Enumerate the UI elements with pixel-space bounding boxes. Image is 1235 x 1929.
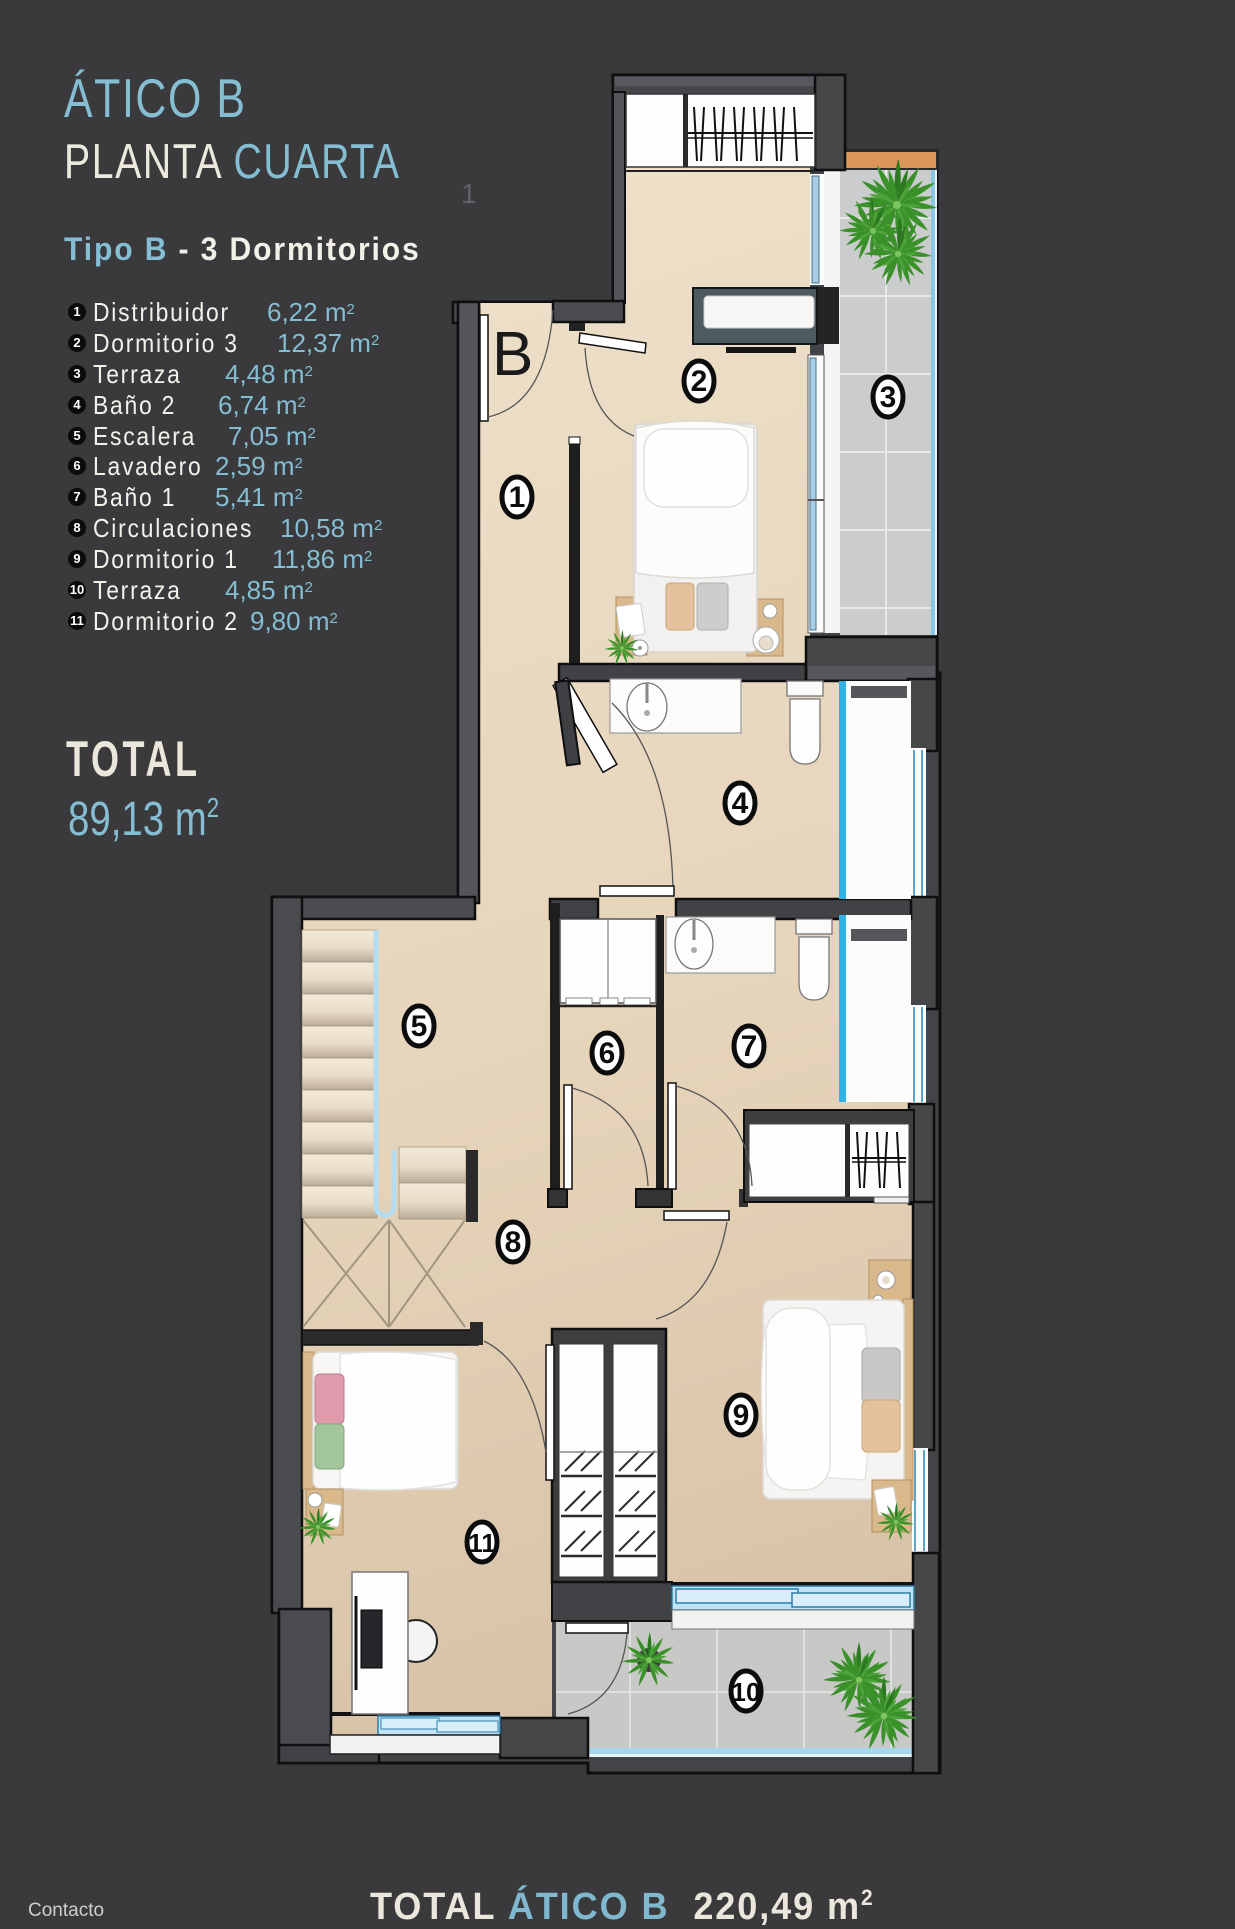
svg-text:5: 5 <box>411 1010 428 1043</box>
svg-text:11: 11 <box>468 1528 496 1558</box>
svg-text:7: 7 <box>741 1030 758 1063</box>
svg-text:10: 10 <box>732 1677 761 1707</box>
svg-text:1: 1 <box>461 178 477 209</box>
svg-text:6: 6 <box>599 1037 616 1070</box>
svg-text:8: 8 <box>505 1226 522 1259</box>
svg-text:4: 4 <box>732 787 749 820</box>
svg-text:3: 3 <box>880 381 897 414</box>
svg-text:1: 1 <box>509 481 526 514</box>
svg-text:B: B <box>492 320 533 389</box>
svg-text:9: 9 <box>733 1399 750 1432</box>
svg-text:2: 2 <box>691 365 708 398</box>
